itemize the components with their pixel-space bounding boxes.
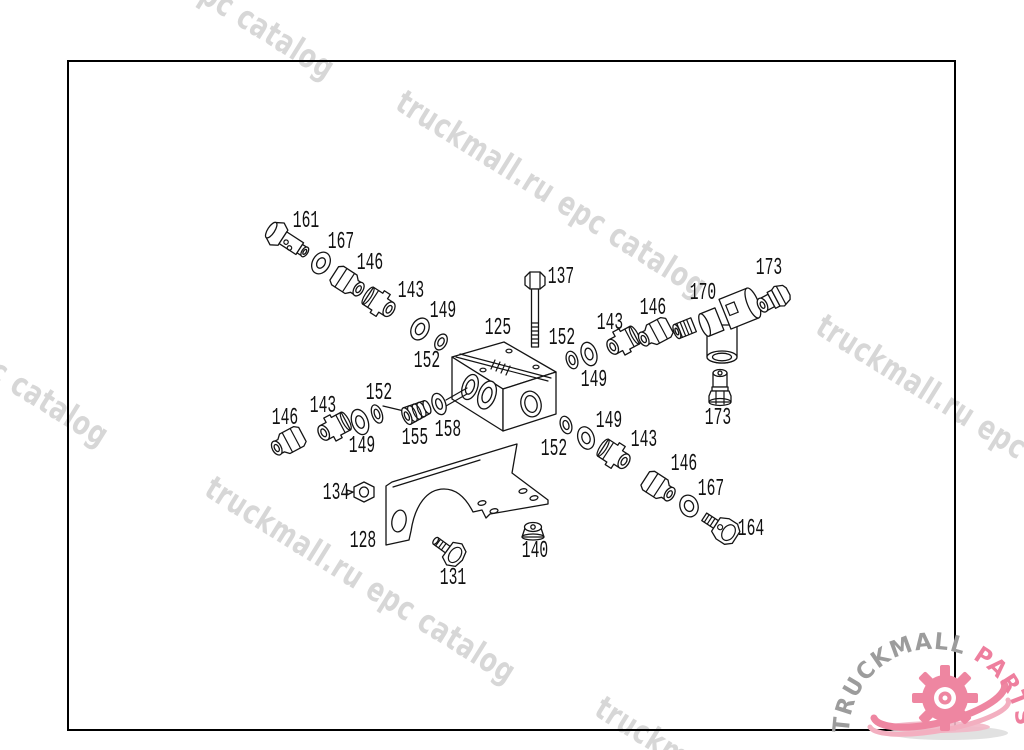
part-label-143: 143 (597, 310, 623, 337)
part-label-146: 146 (640, 295, 666, 322)
part-149-washer (575, 425, 597, 452)
part-label-167: 167 (328, 229, 354, 256)
part-label-143: 143 (631, 427, 657, 454)
part-label-173: 173 (705, 405, 731, 432)
part-149-washer (578, 340, 600, 367)
part-152-ring (564, 350, 580, 371)
part-label-143: 143 (398, 278, 424, 305)
part-label-158: 158 (435, 417, 461, 444)
part-label-146: 146 (357, 250, 383, 277)
parts-diagram: 1611671461431491521251371521491431461701… (0, 0, 1024, 750)
part-173-fitting (709, 370, 731, 406)
part-label-128: 128 (350, 528, 376, 555)
part-label-149: 149 (349, 433, 375, 460)
part-label-146: 146 (272, 405, 298, 432)
part-label-140: 140 (522, 538, 548, 565)
part-137-bolt (525, 272, 545, 347)
truckmallparts-logo: TRUCKMALL PARTS (829, 629, 1024, 740)
part-label-125: 125 (485, 315, 511, 342)
part-158-washer (429, 391, 449, 416)
part-label-134: 134 (323, 480, 349, 507)
part-164-screw-plug (698, 507, 743, 548)
part-label-131: 131 (440, 565, 466, 592)
part-143-union-fitting (593, 435, 635, 475)
part-label-152: 152 (549, 325, 575, 352)
part-label-173: 173 (756, 255, 782, 282)
part-label-143: 143 (310, 393, 336, 420)
part-label-155: 155 (402, 425, 428, 452)
part-label-149: 149 (581, 367, 607, 394)
part-label-149: 149 (596, 408, 622, 435)
part-134-nut (347, 482, 374, 502)
part-label-152: 152 (541, 436, 567, 463)
part-label-152: 152 (414, 348, 440, 375)
part-label-164: 164 (738, 516, 764, 543)
part-label-146: 146 (671, 451, 697, 478)
part-label-137: 137 (548, 264, 574, 291)
part-label-170: 170 (690, 280, 716, 307)
catalog-page: truckmall.ru epc catalog truckmall.ru ep… (0, 0, 1024, 750)
part-152-ring (558, 415, 574, 436)
part-155-plug (400, 398, 434, 426)
part-143-union-fitting (358, 283, 400, 323)
part-170-elbow-fitting (671, 286, 764, 363)
part-label-167: 167 (698, 476, 724, 503)
part-label-152: 152 (366, 380, 392, 407)
part-label-161: 161 (293, 208, 319, 235)
part-125-valve-block (452, 342, 556, 431)
part-label-149: 149 (430, 298, 456, 325)
